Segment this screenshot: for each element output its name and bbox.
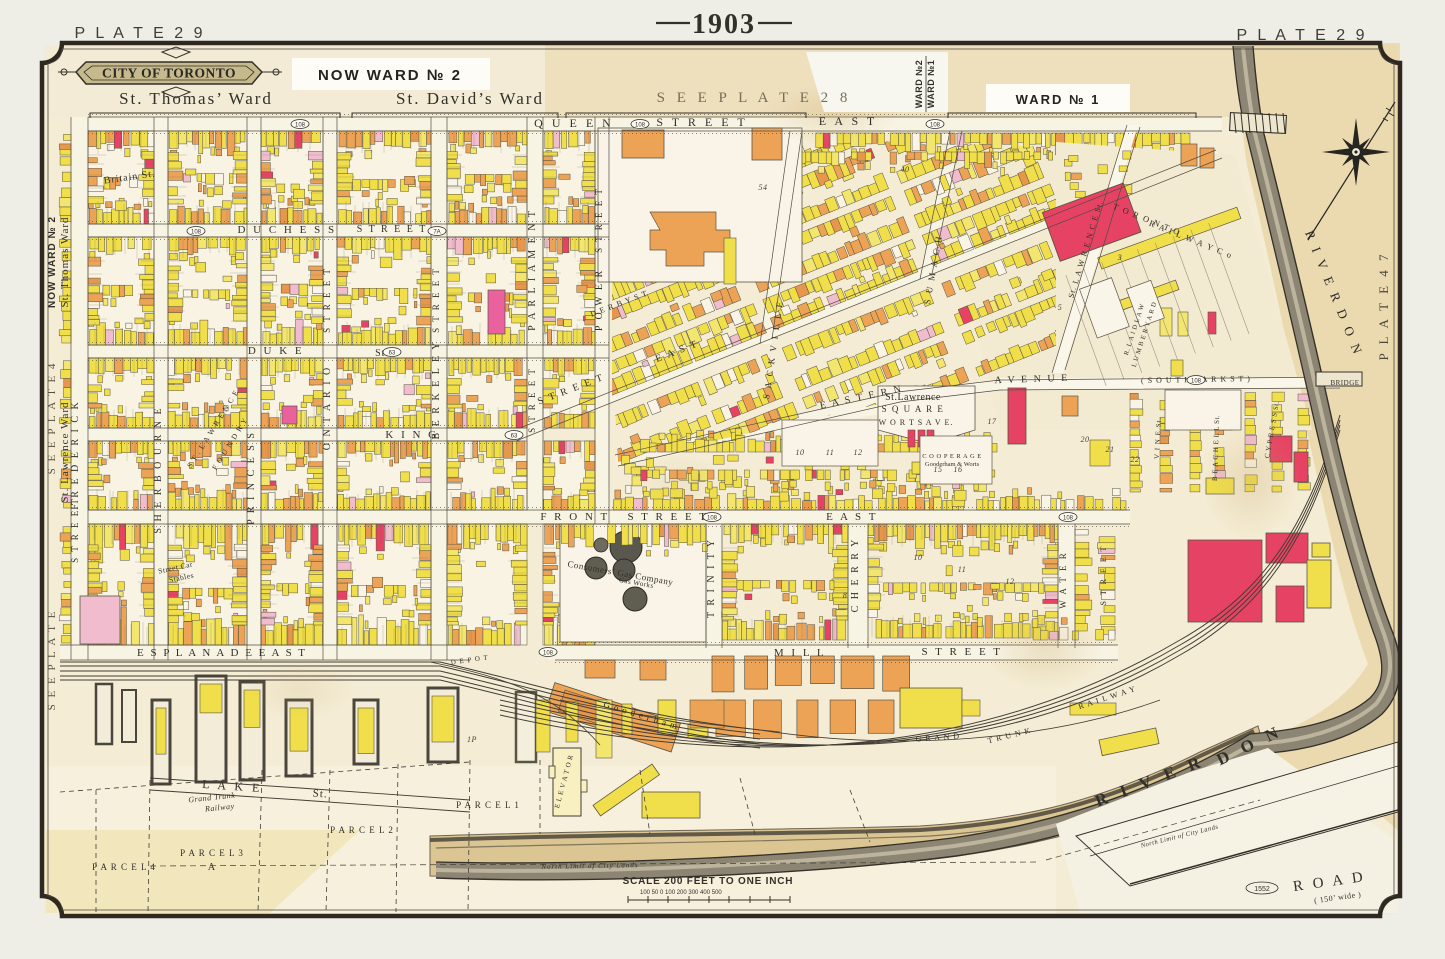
svg-text:108: 108 [295,123,306,129]
svg-text:C H E R R Y: C H E R R Y [850,538,861,613]
svg-text:S T R E E T: S T R E E T [322,267,332,333]
svg-text:E S P L A N A D E E A S T: E S P L A N A D E E A S T [137,647,307,659]
svg-text:S E E P L A T E 4: S E E P L A T E 4 [46,362,58,475]
svg-text:F R O N T: F R O N T [540,511,609,523]
svg-text:W A T E R: W A T E R [1058,551,1068,609]
svg-text:WARD № 1: WARD № 1 [1016,92,1101,107]
svg-text:F R E D E R I C K: F R E D E R I C K [70,400,81,510]
svg-text:BRIDGE: BRIDGE [1330,379,1359,387]
svg-text:100 50 0 100 200 3: 100 50 0 100 200 300 400 500 [640,890,722,896]
svg-text:1903: 1903 [692,9,756,40]
svg-text:108: 108 [635,123,646,129]
svg-text:10: 10 [914,553,923,562]
svg-text:E A S T: E A S T [826,511,878,523]
svg-text:M I L L: M I L L [774,647,826,659]
svg-text:5: 5 [1058,303,1063,312]
svg-text:63: 63 [511,434,518,440]
svg-text:108: 108 [191,230,202,236]
svg-text:A: A [208,862,216,873]
svg-text:P L A T E 2 9: P L A T E 2 9 [1237,27,1368,44]
svg-text:12: 12 [1006,577,1015,586]
svg-text:40: 40 [901,165,910,174]
svg-text:17: 17 [988,417,998,426]
svg-text:P L A T E 2 9: P L A T E 2 9 [75,25,206,42]
svg-text:108: 108 [1191,379,1202,385]
svg-text:WARD №1: WARD №1 [926,60,936,109]
svg-text:WARD №2: WARD №2 [914,60,924,109]
svg-text:S T R E E T: S T R E E T [431,267,441,333]
svg-text:S T R E E T: S T R E E T [527,367,537,433]
svg-text:P A R C E L 1: P A R C E L 1 [456,800,520,810]
svg-text:C O O P E R A G E: C O O P E R A G E [922,453,982,460]
svg-text:54: 54 [759,183,768,192]
svg-text:S T R E E T: S T R E E T [656,115,747,129]
svg-text:P A R C E L 2: P A R C E L 2 [330,825,394,835]
svg-text:8: 8 [843,591,848,600]
svg-text:St. Thomas’ Ward: St. Thomas’ Ward [119,89,273,108]
svg-text:St.: St. [312,788,328,801]
svg-text:S T R E E T: S T R E E T [922,646,1003,658]
svg-text:SCALE 200 FEET TO ONE INCH: SCALE 200 FEET TO ONE INCH [623,876,794,887]
svg-text:63: 63 [389,351,396,357]
svg-text:NOW WARD № 2: NOW WARD № 2 [318,67,462,84]
svg-text:B E R K E L E Y: B E R K E L E Y [431,341,442,440]
svg-text:S T R E E T: S T R E E T [1099,545,1108,606]
svg-text:CITY OF TORONTO: CITY OF TORONTO [102,66,236,81]
svg-text:St. David’s Ward: St. David’s Ward [396,89,544,108]
svg-text:S H E R B O U R N E: S H E R B O U R N E [153,406,164,533]
svg-text:108: 108 [543,651,554,657]
svg-text:11: 11 [958,565,966,574]
svg-text:P R I N C E S S: P R I N C E S S [246,431,257,525]
svg-text:S T R E E T: S T R E E T [70,497,80,563]
svg-text:11: 11 [826,448,834,457]
svg-text:S Q U A R E: S Q U A R E [882,404,945,414]
svg-text:12: 12 [854,448,863,457]
svg-text:3: 3 [1117,253,1123,262]
svg-text:108: 108 [707,516,718,522]
svg-text:E A S T: E A S T [819,114,877,128]
svg-text:16: 16 [954,465,963,474]
svg-text:P A R L I A M E N T: P A R L I A M E N T [527,209,538,331]
svg-text:S T R E E T: S T R E E T [628,511,709,523]
svg-text:P O W E R: P O W E R [594,269,605,331]
svg-text:10: 10 [796,448,805,457]
svg-text:D U K E: D U K E [248,345,304,357]
svg-text:S E E P L A T E: S E E P L A T E [46,610,58,711]
svg-text:21: 21 [1106,445,1115,454]
svg-text:St.Lawrence: St.Lawrence [885,392,941,403]
svg-text:W O R T S A V E.: W O R T S A V E. [879,418,954,427]
svg-text:7A: 7A [433,230,440,236]
svg-text:P L A T E 4 7: P L A T E 4 7 [1376,251,1391,360]
svg-text:20: 20 [1081,435,1090,444]
svg-text:S T R E E T: S T R E E T [594,187,604,253]
svg-text:D U C H E S S: D U C H E S S [237,224,336,236]
svg-text:108: 108 [930,123,941,129]
svg-text:P A R C E L 4: P A R C E L 4 [92,862,156,872]
svg-text:S T R E E T: S T R E E T [357,224,428,235]
svg-text:P A R C E L 3: P A R C E L 3 [180,848,244,858]
svg-text:NOW WARD № 2: NOW WARD № 2 [47,216,58,308]
svg-text:108: 108 [1063,516,1074,522]
svg-text:1552: 1552 [1254,886,1270,893]
svg-text:O N T A R I O: O N T A R I O [322,366,333,451]
svg-text:S E E P L A T E 2 8: S E E P L A T E 2 8 [657,90,852,106]
svg-text:T R I N I T Y: T R I N I T Y [706,538,717,618]
svg-text:15: 15 [934,465,943,474]
svg-text:Q U E E N: Q U E E N [534,116,614,130]
svg-text:22: 22 [1131,455,1140,464]
svg-text:St. Thomas Ward: St. Thomas Ward [59,216,71,307]
svg-text:1P: 1P [467,735,477,744]
